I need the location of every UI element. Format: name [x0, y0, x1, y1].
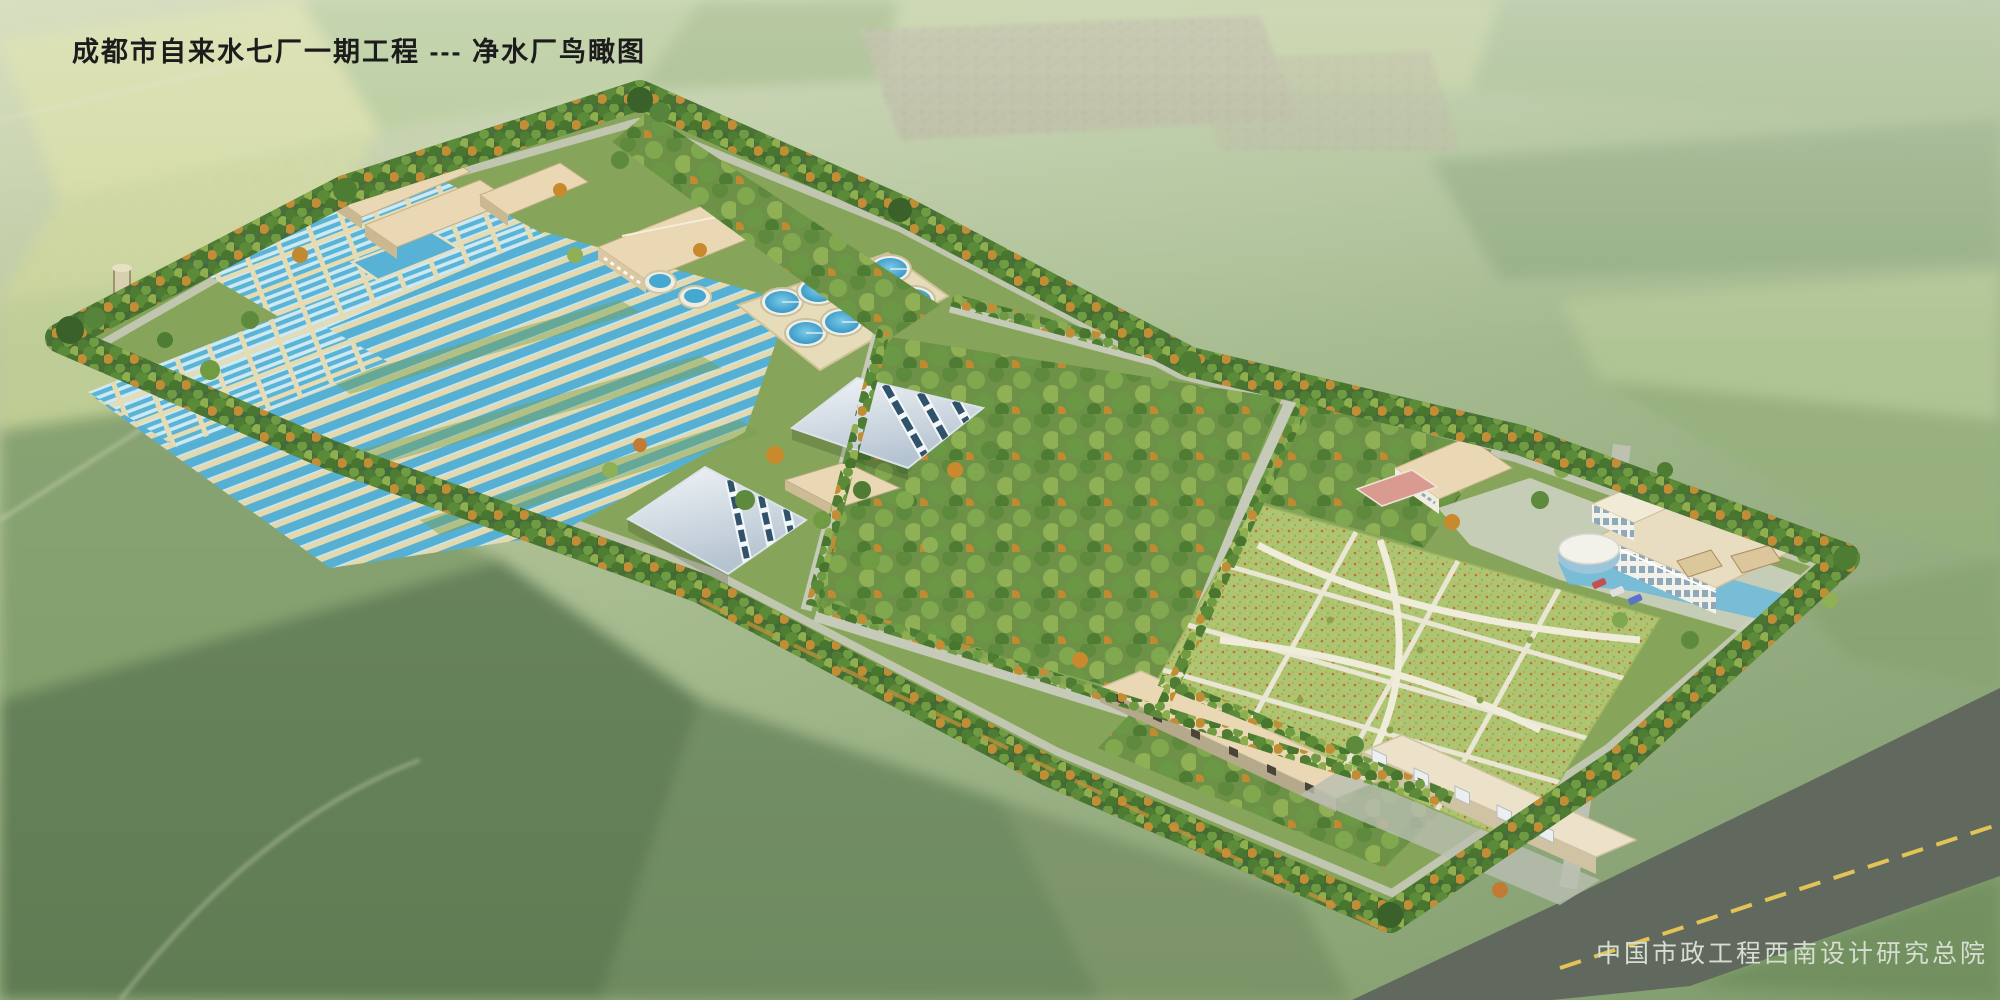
mixing-tank-1: [644, 271, 676, 293]
round-pavilion: [1558, 534, 1620, 574]
mixing-tank-2: [679, 286, 711, 308]
aerial-rendering: 成都市自来水七厂一期工程 --- 净水厂鸟瞰图 中国市政工程西南设计研究总院: [0, 0, 2000, 1000]
design-institute-credit: 中国市政工程西南设计研究总院: [1596, 934, 1988, 970]
scene-canvas: [0, 0, 2000, 1000]
page-title: 成都市自来水七厂一期工程 --- 净水厂鸟瞰图: [72, 30, 646, 69]
